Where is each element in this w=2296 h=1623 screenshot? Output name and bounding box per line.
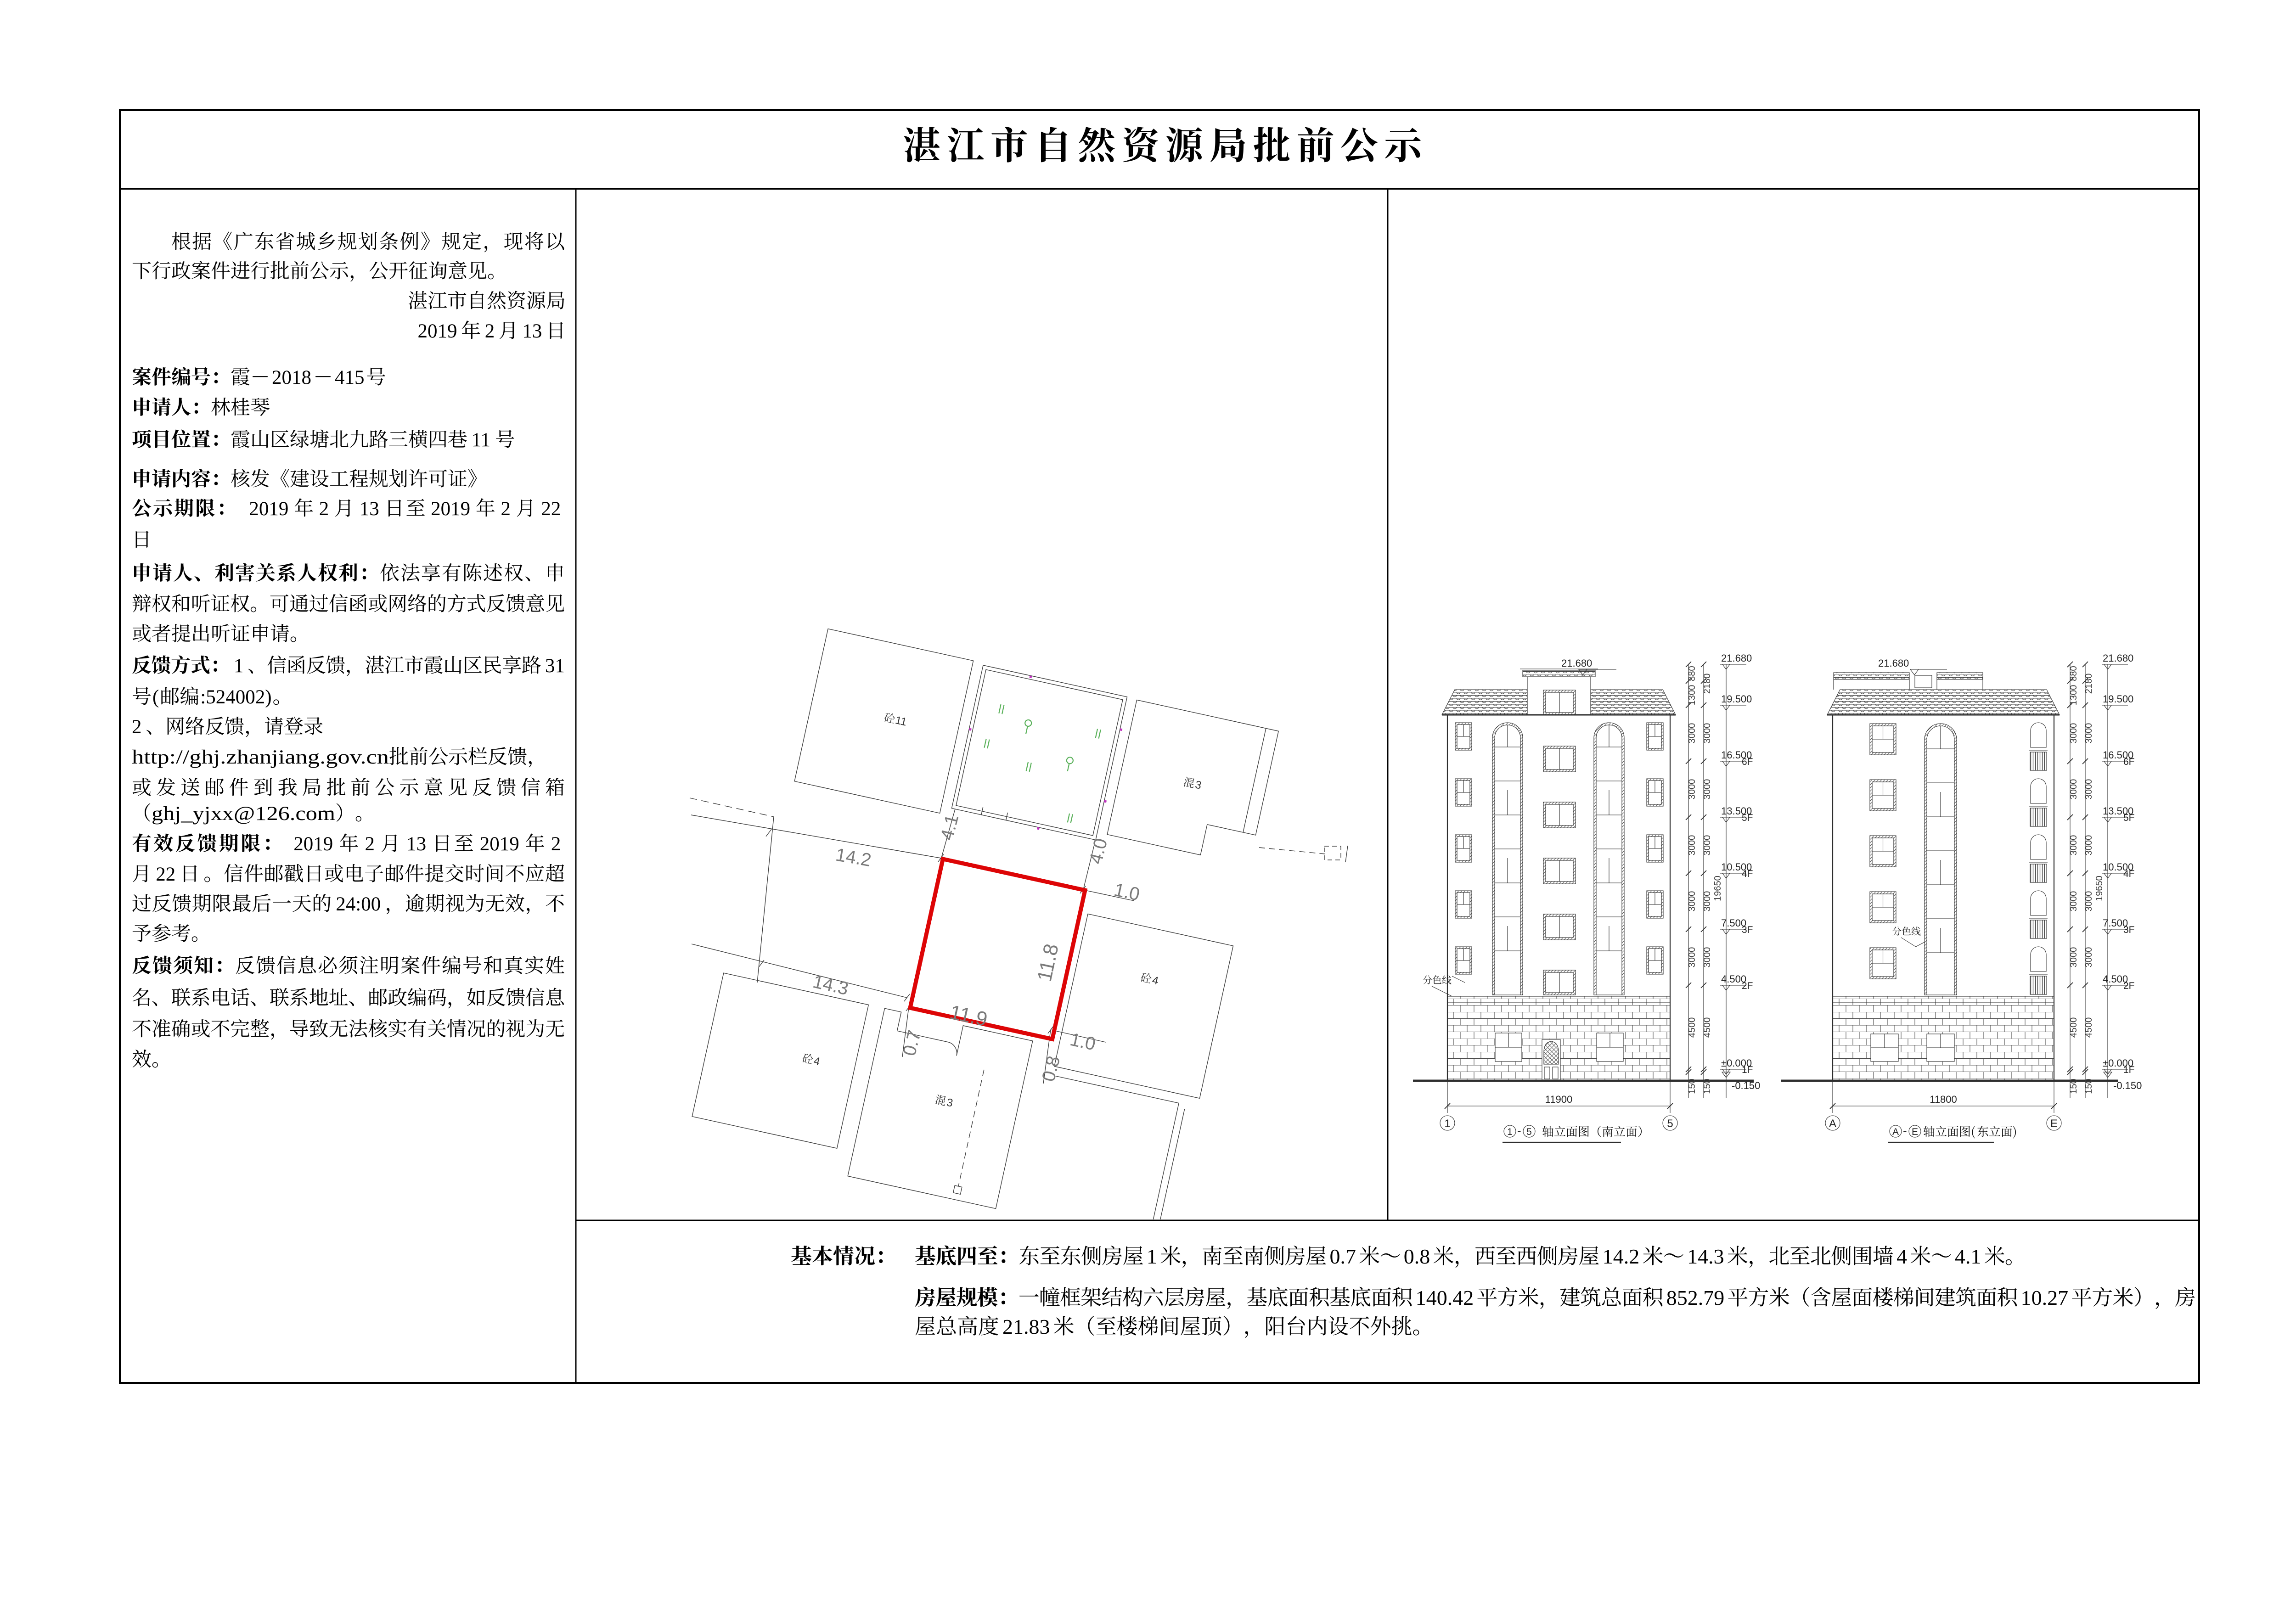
svg-text:-: - bbox=[1517, 1124, 1521, 1138]
svg-text:3000: 3000 bbox=[1702, 947, 1712, 968]
svg-text:3000: 3000 bbox=[2069, 835, 2079, 856]
svg-text:3000: 3000 bbox=[1702, 835, 1712, 856]
svg-text:E: E bbox=[1912, 1127, 1918, 1137]
svg-text:19.500: 19.500 bbox=[2103, 693, 2133, 705]
svg-text:22: 22 bbox=[156, 864, 175, 885]
svg-text:3000: 3000 bbox=[1702, 779, 1712, 800]
svg-text:21.680: 21.680 bbox=[2103, 652, 2133, 664]
svg-text:4: 4 bbox=[1896, 1245, 1907, 1268]
svg-text:10.27: 10.27 bbox=[2021, 1286, 2069, 1309]
svg-text:6F: 6F bbox=[2123, 757, 2135, 767]
svg-text:0.8: 0.8 bbox=[1404, 1245, 1430, 1268]
svg-text:A: A bbox=[1892, 1127, 1899, 1137]
svg-text:1: 1 bbox=[1507, 1127, 1513, 1137]
svg-text:1300: 1300 bbox=[2069, 685, 2079, 706]
svg-text:3000: 3000 bbox=[2084, 891, 2094, 912]
svg-text:13: 13 bbox=[406, 833, 426, 855]
svg-text:19650: 19650 bbox=[1713, 876, 1723, 901]
svg-text:2019: 2019 bbox=[431, 498, 470, 520]
svg-text:150: 150 bbox=[2069, 1078, 2079, 1094]
svg-text:±0.000: ±0.000 bbox=[1721, 1057, 1752, 1069]
svg-text:4500: 4500 bbox=[1687, 1017, 1697, 1038]
svg-text:3000: 3000 bbox=[1687, 891, 1697, 912]
svg-text:2180: 2180 bbox=[1702, 674, 1712, 694]
svg-text:4500: 4500 bbox=[2084, 1017, 2094, 1038]
svg-text:3F: 3F bbox=[2123, 925, 2135, 935]
svg-text:±0.000: ±0.000 bbox=[2103, 1057, 2133, 1069]
svg-text:2F: 2F bbox=[2123, 981, 2135, 991]
svg-text:http://ghj.zhanjiang.gov.cn: http://ghj.zhanjiang.gov.cn bbox=[132, 747, 389, 768]
svg-text:A: A bbox=[1829, 1118, 1836, 1130]
svg-text:4F: 4F bbox=[1742, 869, 1753, 879]
svg-text:2: 2 bbox=[365, 833, 375, 855]
svg-text:-0.150: -0.150 bbox=[2113, 1080, 2142, 1091]
svg-text:19.500: 19.500 bbox=[1721, 693, 1752, 705]
svg-text:3000: 3000 bbox=[1687, 947, 1697, 968]
svg-text:4500: 4500 bbox=[2069, 1017, 2079, 1038]
svg-text:3000: 3000 bbox=[2084, 835, 2094, 856]
svg-text:11800: 11800 bbox=[1930, 1094, 1957, 1105]
svg-text:3000: 3000 bbox=[2084, 779, 2094, 800]
svg-text:140.42: 140.42 bbox=[1416, 1286, 1474, 1309]
svg-text:5: 5 bbox=[1667, 1118, 1673, 1130]
svg-text:3000: 3000 bbox=[2084, 723, 2094, 744]
svg-text:2019: 2019 bbox=[480, 833, 519, 855]
svg-text:880: 880 bbox=[2069, 666, 2079, 681]
svg-text:3000: 3000 bbox=[1687, 723, 1697, 744]
svg-text::524002): :524002) bbox=[200, 686, 271, 708]
svg-text:5F: 5F bbox=[2123, 813, 2135, 823]
svg-text:6F: 6F bbox=[1742, 757, 1753, 767]
svg-text:14.3: 14.3 bbox=[1687, 1245, 1724, 1268]
svg-text:1: 1 bbox=[1147, 1245, 1157, 1268]
svg-text:2019: 2019 bbox=[249, 498, 288, 520]
svg-text:1300: 1300 bbox=[1687, 685, 1697, 706]
svg-text:2018: 2018 bbox=[272, 367, 311, 388]
svg-text:0.7: 0.7 bbox=[1330, 1245, 1356, 1268]
svg-text:11: 11 bbox=[472, 429, 490, 451]
svg-text:2F: 2F bbox=[1742, 981, 1753, 991]
svg-text:150: 150 bbox=[1702, 1078, 1712, 1094]
svg-text:3000: 3000 bbox=[1702, 723, 1712, 744]
svg-text:3000: 3000 bbox=[2069, 891, 2079, 912]
svg-text:11900: 11900 bbox=[1545, 1094, 1573, 1105]
svg-text:3000: 3000 bbox=[1687, 779, 1697, 800]
svg-text:21.83: 21.83 bbox=[1002, 1315, 1050, 1338]
svg-text:852.79: 852.79 bbox=[1666, 1286, 1725, 1309]
svg-text:19650: 19650 bbox=[2094, 876, 2105, 901]
svg-text:3000: 3000 bbox=[2069, 779, 2079, 800]
svg-text:415: 415 bbox=[335, 367, 365, 388]
svg-text:(: ( bbox=[152, 686, 159, 708]
svg-text:4F: 4F bbox=[2123, 869, 2135, 879]
svg-text:22: 22 bbox=[541, 498, 561, 520]
svg-text:2180: 2180 bbox=[2084, 674, 2094, 694]
svg-text:3000: 3000 bbox=[1702, 891, 1712, 912]
svg-text:5F: 5F bbox=[1742, 813, 1753, 823]
svg-text:2: 2 bbox=[485, 320, 495, 342]
svg-text:2019: 2019 bbox=[293, 833, 333, 855]
svg-text:5: 5 bbox=[1526, 1127, 1532, 1137]
svg-text:13: 13 bbox=[360, 498, 379, 520]
svg-text:2: 2 bbox=[319, 498, 329, 520]
svg-text:3000: 3000 bbox=[1687, 835, 1697, 856]
svg-text:3000: 3000 bbox=[2069, 723, 2079, 744]
svg-text:24:00: 24:00 bbox=[336, 893, 381, 915]
svg-text:21.680: 21.680 bbox=[1561, 657, 1592, 669]
svg-text:1: 1 bbox=[1444, 1118, 1450, 1130]
svg-text:4500: 4500 bbox=[1702, 1017, 1712, 1038]
svg-text:2: 2 bbox=[132, 716, 142, 738]
svg-text:31: 31 bbox=[545, 655, 565, 677]
svg-text:21.680: 21.680 bbox=[1721, 652, 1752, 664]
svg-text:4.1: 4.1 bbox=[1955, 1245, 1981, 1268]
svg-text:1: 1 bbox=[234, 655, 244, 677]
svg-text:13: 13 bbox=[522, 320, 542, 342]
svg-text:21.680: 21.680 bbox=[1878, 657, 1909, 669]
svg-text:3000: 3000 bbox=[2084, 947, 2094, 968]
svg-text:2: 2 bbox=[501, 498, 511, 520]
svg-text:-0.150: -0.150 bbox=[1732, 1080, 1760, 1091]
svg-text:2019: 2019 bbox=[418, 320, 457, 342]
svg-text:-: - bbox=[1903, 1124, 1907, 1138]
svg-text:880: 880 bbox=[1687, 666, 1697, 681]
svg-text:3F: 3F bbox=[1742, 925, 1753, 935]
svg-text:14.2: 14.2 bbox=[1603, 1245, 1640, 1268]
svg-text:150: 150 bbox=[2084, 1078, 2094, 1094]
svg-text:150: 150 bbox=[1687, 1078, 1697, 1094]
svg-text:ghj_yjxx@126.com: ghj_yjxx@126.com bbox=[152, 803, 335, 825]
svg-text:E: E bbox=[2050, 1118, 2058, 1130]
svg-text:3000: 3000 bbox=[2069, 947, 2079, 968]
svg-text:2: 2 bbox=[551, 833, 561, 855]
